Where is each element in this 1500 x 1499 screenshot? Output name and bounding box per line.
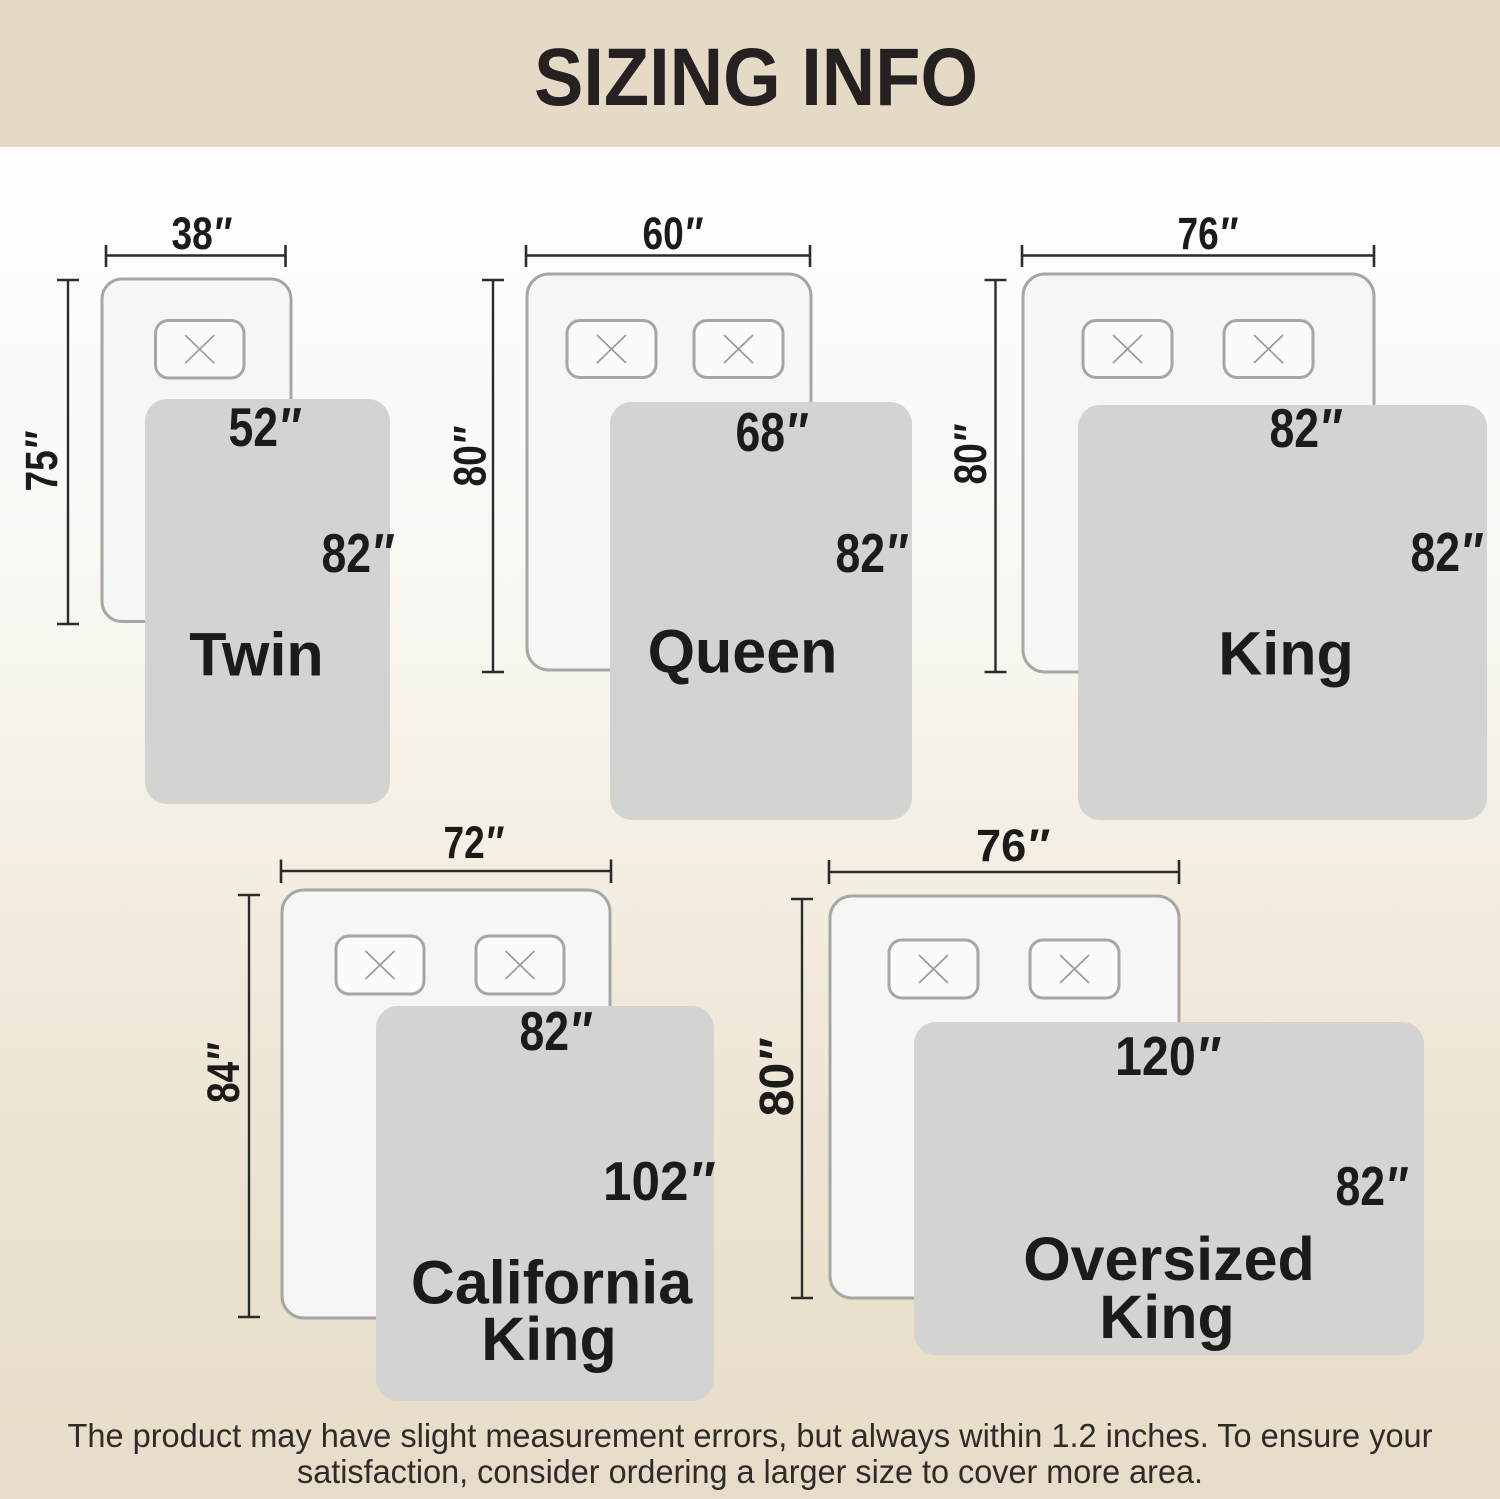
svg-text:satisfaction, consider orderin: satisfaction, consider ordering a larger… [297, 1453, 1203, 1490]
svg-text:120″: 120″ [1115, 1025, 1221, 1087]
svg-text:King: King [481, 1305, 617, 1373]
svg-text:82″: 82″ [1411, 521, 1484, 583]
svg-text:102″: 102″ [603, 1150, 715, 1212]
svg-text:38″: 38″ [172, 208, 233, 259]
svg-text:Queen: Queen [648, 618, 838, 686]
svg-text:82″: 82″ [836, 522, 909, 584]
svg-text:80″: 80″ [945, 423, 996, 484]
svg-text:72″: 72″ [444, 817, 505, 868]
svg-text:76″: 76″ [1178, 208, 1239, 259]
svg-text:82″: 82″ [520, 1000, 593, 1062]
svg-text:The product may have slight me: The product may have slight measurement … [68, 1417, 1433, 1454]
svg-text:King: King [1218, 620, 1354, 688]
svg-text:80″: 80″ [445, 425, 496, 486]
svg-text:52″: 52″ [229, 396, 302, 458]
svg-text:60″: 60″ [643, 208, 704, 259]
svg-text:King: King [1099, 1283, 1235, 1351]
svg-text:82″: 82″ [1336, 1155, 1409, 1217]
svg-text:SIZING INFO: SIZING INFO [534, 32, 978, 123]
svg-text:76″: 76″ [976, 820, 1050, 871]
svg-text:75″: 75″ [16, 430, 67, 491]
svg-text:80″: 80″ [751, 1038, 804, 1116]
svg-text:82″: 82″ [322, 522, 395, 584]
svg-text:68″: 68″ [736, 401, 809, 463]
svg-text:82″: 82″ [1270, 397, 1343, 459]
svg-text:84″: 84″ [198, 1042, 249, 1103]
svg-text:Twin: Twin [189, 621, 323, 689]
